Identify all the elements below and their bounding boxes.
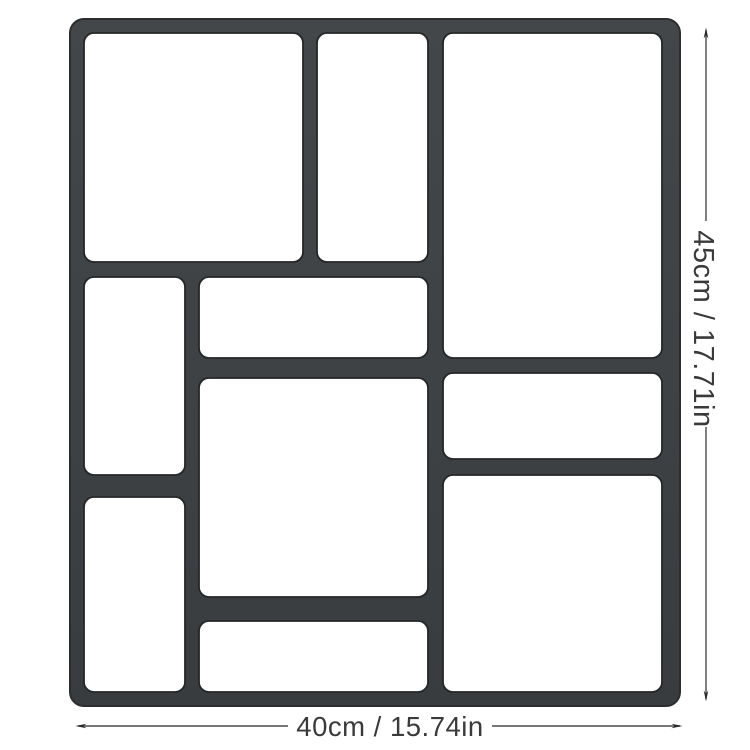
svg-text:40cm / 15.74in: 40cm / 15.74in bbox=[296, 711, 483, 742]
svg-text:45cm / 17.71in: 45cm / 17.71in bbox=[687, 230, 719, 427]
